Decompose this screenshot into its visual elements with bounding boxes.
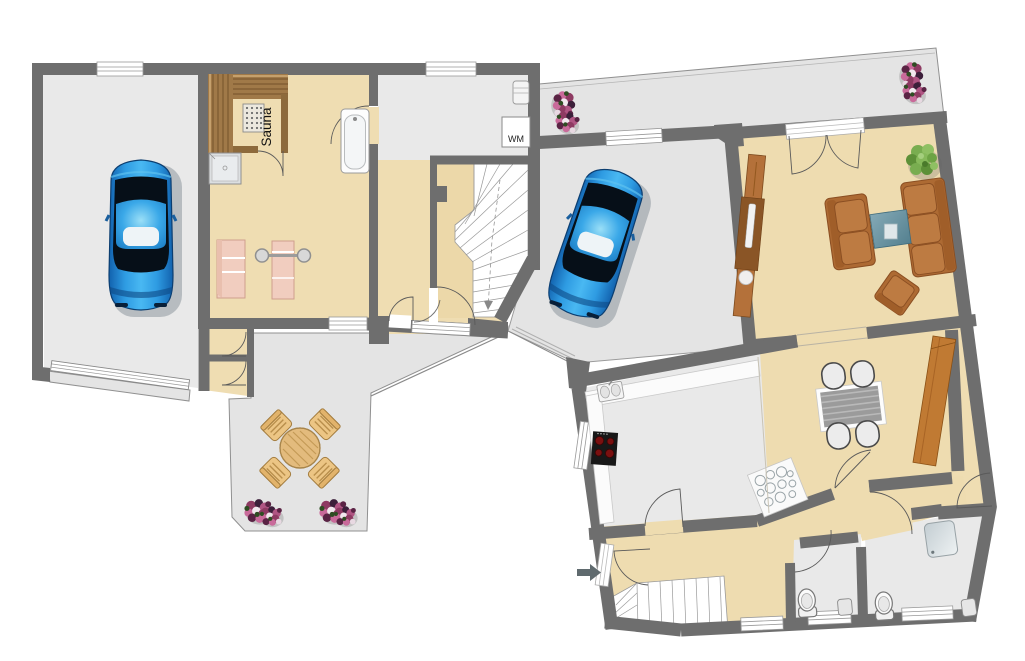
svg-text:WM: WM bbox=[508, 134, 524, 144]
svg-text:Sauna: Sauna bbox=[259, 107, 274, 147]
